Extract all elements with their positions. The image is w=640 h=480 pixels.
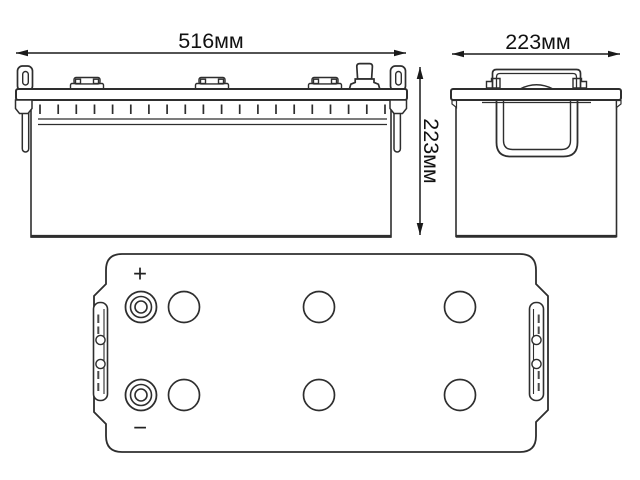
vent-cap-group-2 bbox=[196, 78, 229, 90]
dim-front-height: 223мм bbox=[417, 67, 443, 235]
vent-cap bbox=[169, 292, 200, 323]
lid-band bbox=[451, 89, 621, 100]
handle-strip-left bbox=[94, 303, 108, 401]
lid-band bbox=[16, 89, 407, 100]
vent-cap bbox=[445, 292, 476, 323]
handle-pin bbox=[96, 335, 105, 344]
top-outline bbox=[94, 254, 548, 452]
arrowhead-down-icon bbox=[417, 223, 424, 235]
side-view bbox=[451, 70, 621, 237]
handle-pin bbox=[532, 335, 541, 344]
arrowhead-left-icon bbox=[452, 51, 464, 58]
arrowhead-right-icon bbox=[608, 51, 620, 58]
vent-cap-group-3 bbox=[309, 78, 342, 90]
plus-sign: + bbox=[133, 261, 147, 288]
handle-loop-left bbox=[18, 66, 33, 91]
dim-side-width: 223мм bbox=[452, 30, 620, 57]
handle-rod-left bbox=[16, 100, 33, 152]
handle-rod-right bbox=[390, 100, 407, 152]
dim-front-width: 516мм bbox=[16, 29, 406, 56]
handle-pin bbox=[96, 359, 105, 368]
battery-body-side bbox=[456, 100, 617, 237]
vent-cap bbox=[169, 380, 200, 411]
front-view bbox=[16, 64, 408, 237]
battery-body-front bbox=[31, 100, 391, 237]
lid-ear-right bbox=[617, 101, 622, 108]
vent-cap bbox=[445, 380, 476, 411]
negative-terminal bbox=[126, 380, 157, 411]
front-height-label: 223мм bbox=[419, 118, 443, 183]
top-view: + − bbox=[94, 254, 549, 452]
handle-strip-right bbox=[530, 303, 544, 401]
terminal-post bbox=[349, 64, 379, 89]
arrowhead-up-icon bbox=[417, 67, 424, 79]
arrowhead-right-icon bbox=[394, 50, 406, 57]
arrowhead-left-icon bbox=[16, 50, 28, 57]
battery-diagram: 516мм 223мм 223мм bbox=[0, 0, 640, 480]
handle-loop-right bbox=[391, 66, 406, 91]
vent-cap bbox=[304, 292, 335, 323]
vent-cap bbox=[304, 380, 335, 411]
vent-cap-group-1 bbox=[71, 78, 104, 90]
handle-pin bbox=[532, 359, 541, 368]
lid-ear-left bbox=[452, 101, 457, 108]
front-width-label: 516мм bbox=[178, 29, 243, 53]
minus-sign: − bbox=[133, 415, 147, 442]
battery-diagram-page: 516мм 223мм 223мм bbox=[0, 0, 640, 480]
side-width-label: 223мм bbox=[505, 30, 570, 54]
positive-terminal bbox=[126, 292, 157, 323]
